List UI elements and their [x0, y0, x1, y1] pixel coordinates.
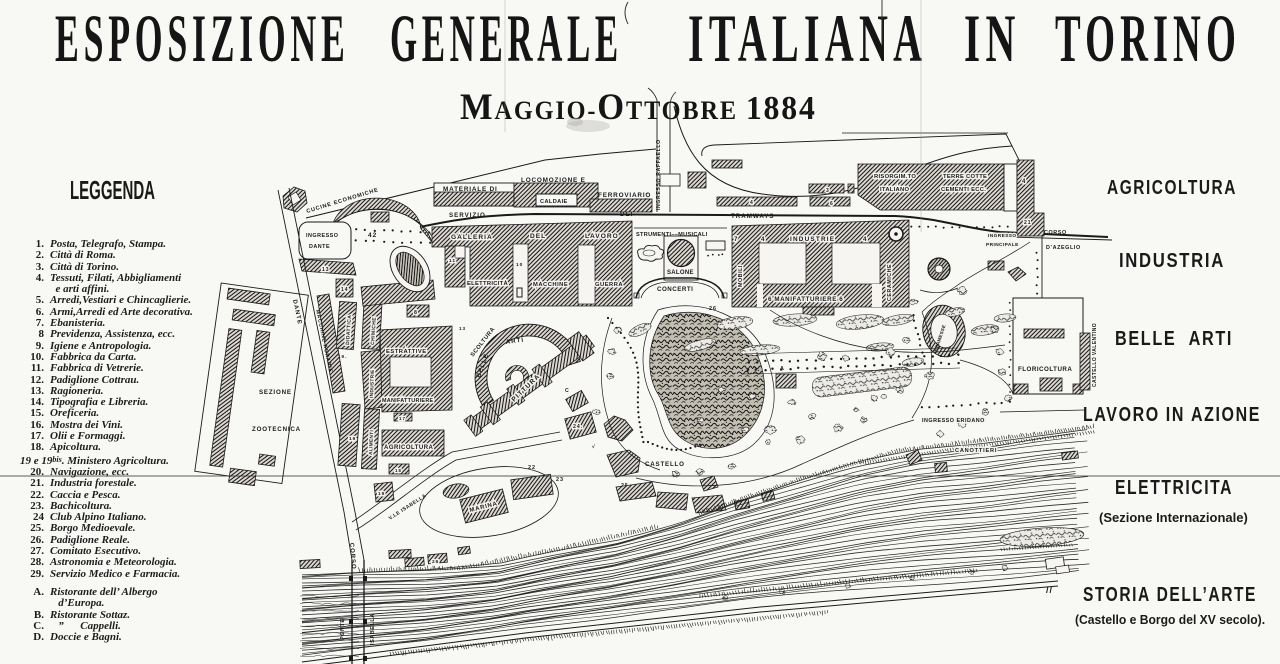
svg-text:DEL: DEL — [530, 233, 546, 240]
svg-text:ARTI: ARTI — [505, 336, 524, 345]
svg-text:16: 16 — [349, 436, 356, 442]
svg-text:CERAMICHE: CERAMICHE — [887, 264, 893, 301]
svg-text:MACCHINE: MACCHINE — [533, 282, 568, 288]
svg-text:√: √ — [592, 444, 596, 450]
svg-text:FERROVIARIO: FERROVIARIO — [598, 192, 651, 199]
svg-text:7: 7 — [734, 236, 738, 243]
svg-text:GALLERIA: GALLERIA — [451, 234, 493, 241]
svg-text:3: 3 — [826, 188, 830, 194]
svg-text:INGRESSO: INGRESSO — [306, 233, 338, 239]
svg-text:10: 10 — [516, 262, 523, 268]
svg-text:D’AZEGLIO: D’AZEGLIO — [1046, 245, 1081, 251]
svg-text:ISABELLA: ISABELLA — [370, 613, 376, 645]
svg-text:GUERRA: GUERRA — [595, 282, 623, 288]
svg-text:17: 17 — [399, 416, 406, 421]
svg-text:SEZIONE: SEZIONE — [259, 389, 292, 396]
svg-text:C: C — [565, 388, 570, 394]
svg-text:4: 4 — [863, 236, 867, 243]
svg-text:INGRESSO ERIDANO: INGRESSO ERIDANO — [922, 418, 985, 424]
svg-text:ELETTRICITÀ: ELETTRICITÀ — [467, 280, 508, 287]
svg-text:21: 21 — [1024, 220, 1032, 226]
svg-text:24.: 24. — [573, 424, 583, 430]
svg-text:19.: 19. — [338, 354, 347, 359]
svg-text:42: 42 — [368, 232, 377, 239]
svg-text:ITALIANO: ITALIANO — [880, 187, 910, 193]
svg-text:DANTE: DANTE — [291, 299, 302, 325]
svg-text:18: 18 — [395, 468, 402, 473]
svg-text:14: 14 — [341, 287, 349, 293]
svg-text:LOCOMOZIONE E: LOCOMOZIONE E — [521, 177, 586, 184]
svg-text://: // — [1046, 585, 1053, 595]
svg-text:SERVIZIO: SERVIZIO — [449, 212, 486, 219]
svg-text:13: 13 — [322, 267, 330, 273]
svg-text:CEMENTI ECC.: CEMENTI ECC. — [941, 187, 986, 193]
svg-text:CORSO: CORSO — [1044, 230, 1067, 236]
svg-text:13: 13 — [459, 326, 466, 331]
svg-text:CALDAIE: CALDAIE — [540, 199, 568, 205]
svg-text:6 MANIFATTURIERE 6: 6 MANIFATTURIERE 6 — [768, 296, 843, 303]
svg-text:CONCERTI: CONCERTI — [657, 286, 693, 293]
svg-text:ESTRATTIVE: ESTRATTIVE — [386, 349, 427, 355]
svg-text:INGRESSO: INGRESSO — [988, 233, 1017, 239]
svg-text:TERRE COTTE: TERRE COTTE — [943, 174, 987, 180]
svg-text:CASTELLO: CASTELLO — [645, 461, 685, 468]
svg-text:ZOOTECNICA: ZOOTECNICA — [252, 426, 301, 433]
svg-text:PRINCIPALE: PRINCIPALE — [986, 242, 1019, 248]
svg-text:INDUSTRIE: INDUSTRIE — [790, 236, 835, 243]
svg-text:6: 6 — [830, 201, 834, 207]
svg-text:4: 4 — [1022, 179, 1026, 185]
svg-text:8: 8 — [414, 310, 418, 316]
svg-text:MANIFATTURIERE: MANIFATTURIERE — [382, 398, 434, 404]
svg-text:CANOTTIERI: CANOTTIERI — [955, 448, 997, 454]
svg-text:19: 19 — [378, 491, 385, 497]
svg-text:4: 4 — [750, 200, 754, 206]
svg-text:23: 23 — [556, 477, 564, 483]
svg-text:MATERIALE DI: MATERIALE DI — [443, 186, 498, 193]
svg-text:22: 22 — [528, 465, 536, 471]
svg-text:4: 4 — [761, 236, 765, 243]
svg-text:DANTE: DANTE — [309, 244, 330, 250]
svg-text:11: 11 — [449, 258, 456, 264]
svg-text:PONTE: PONTE — [340, 618, 346, 640]
svg-text:FLORICOLTURA: FLORICOLTURA — [1018, 366, 1072, 373]
svg-text:TRAMWAYS: TRAMWAYS — [731, 213, 775, 220]
svg-text:INDUSTRIE: INDUSTRIE — [369, 369, 376, 398]
svg-text:CASTELLO VALENTINO: CASTELLO VALENTINO — [1092, 323, 1098, 387]
svg-text:SALONE: SALONE — [667, 270, 694, 276]
svg-text:AGRICOLTURA: AGRICOLTURA — [384, 445, 434, 451]
svg-text:MOBILI: MOBILI — [738, 265, 744, 287]
svg-text:LAVORO: LAVORO — [585, 233, 619, 240]
svg-text:RISORGIM.TO: RISORGIM.TO — [874, 174, 916, 180]
svg-text:26: 26 — [432, 559, 439, 565]
